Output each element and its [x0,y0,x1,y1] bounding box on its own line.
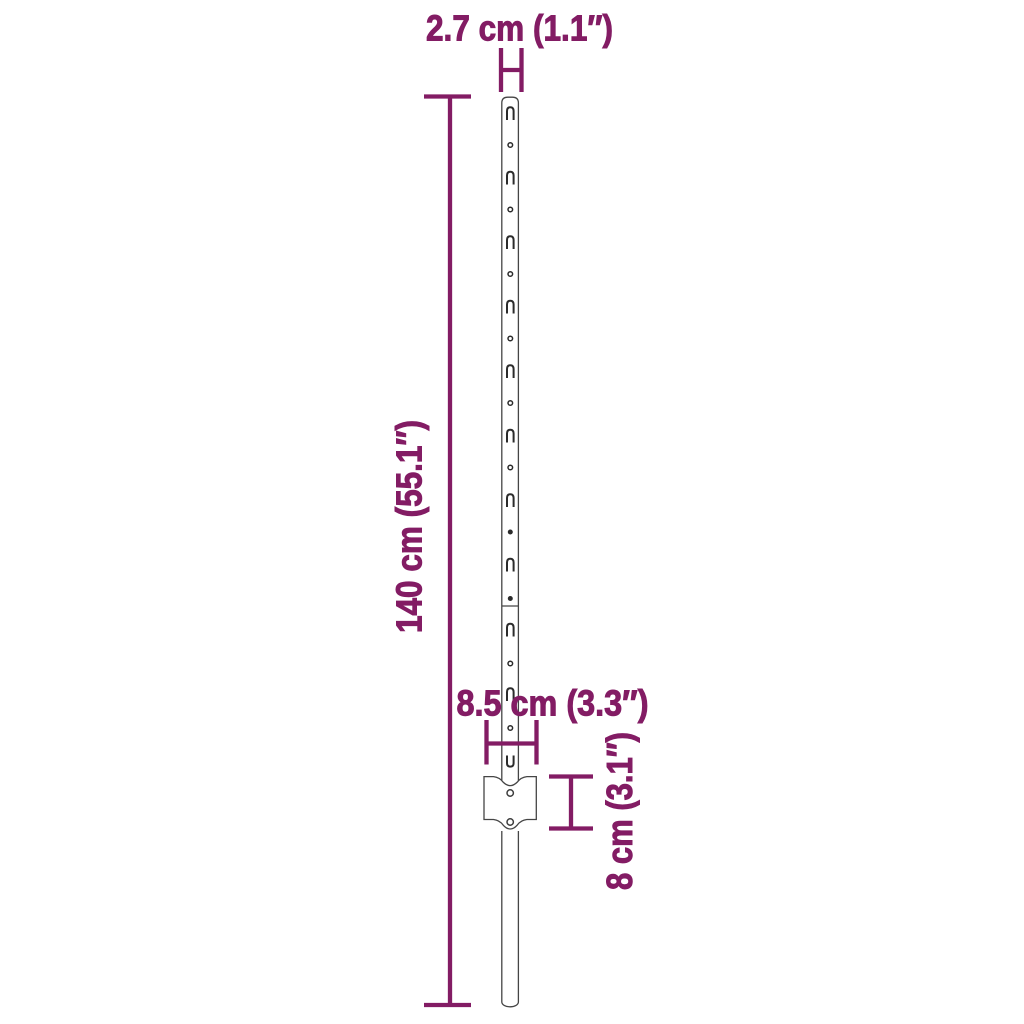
svg-text:140 cm (55.1″): 140 cm (55.1″) [389,420,430,633]
svg-text:8 cm (3.1″): 8 cm (3.1″) [599,732,640,890]
svg-text:8.5 cm (3.3″): 8.5 cm (3.3″) [457,683,649,724]
svg-text:2.7 cm (1.1″): 2.7 cm (1.1″) [426,8,613,49]
